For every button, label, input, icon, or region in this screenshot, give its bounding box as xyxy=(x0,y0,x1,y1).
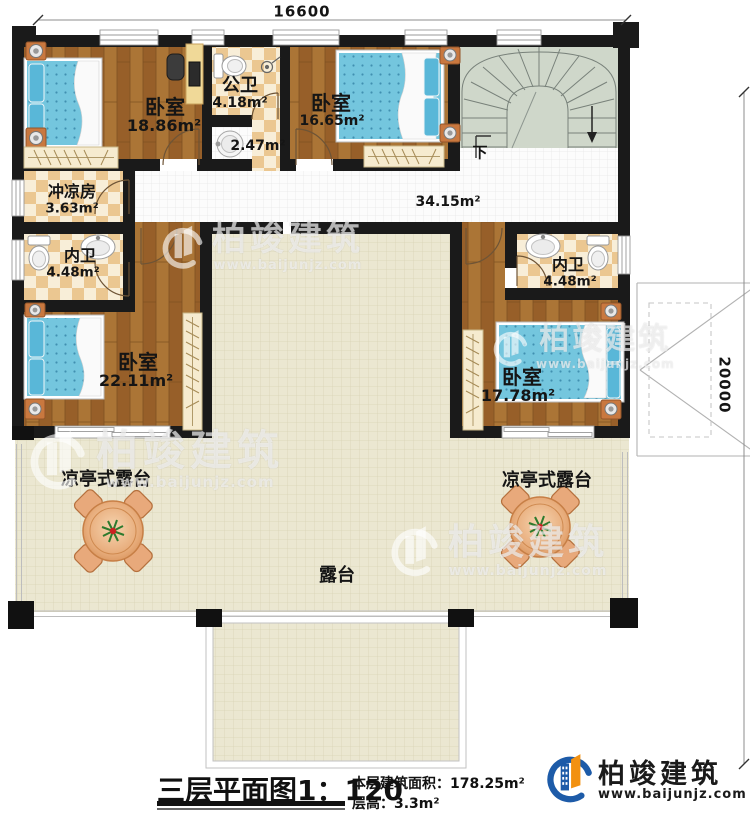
bed-icon xyxy=(24,315,104,399)
floor-plan-page: 16600 20000 卧室 18.86m² 公卫 4.18m² 2.47m² … xyxy=(0,0,750,819)
room-area-shower-room: 3.63m² xyxy=(45,202,98,216)
wardrobe-icon xyxy=(183,313,202,430)
bedroom-bottom-left-entry-floor xyxy=(135,222,200,312)
lower-terrace-floor xyxy=(213,623,459,761)
room-label-bedroom-bottom-left: 卧室 xyxy=(118,352,158,372)
room-area-bedroom-top-right: 16.65m² xyxy=(299,114,364,128)
toilet-icon xyxy=(587,236,609,270)
room-label-shower-room: 冲凉房 xyxy=(48,184,96,200)
wardrobe-icon xyxy=(24,147,118,168)
room-label-pavilion-left: 凉亭式露台 xyxy=(61,471,151,489)
desk-icon xyxy=(186,44,203,104)
title-underline xyxy=(157,801,345,806)
wardrobe-icon xyxy=(364,146,444,167)
room-label-pavilion-right: 凉亭式露台 xyxy=(502,472,592,490)
room-label-bedroom-top-right: 卧室 xyxy=(311,93,351,113)
stair-down-label: 下 xyxy=(472,146,487,161)
room-label-terrace: 露台 xyxy=(319,567,355,585)
building-area-label: 本层建筑面积： xyxy=(352,776,450,792)
room-area-ensuite-left: 4.48m² xyxy=(46,266,99,280)
room-label-ensuite-left: 内卫 xyxy=(64,248,96,264)
room-area-hallway: 34.15m² xyxy=(415,195,480,209)
room-area-bedroom-bottom-right: 17.78m² xyxy=(481,388,555,404)
building-area-value: 178.25m² xyxy=(450,776,525,792)
bedroom-bottom-right-entry-floor xyxy=(462,222,505,300)
room-area-public-bath: 4.18m² xyxy=(212,96,267,110)
courtyard-floor xyxy=(212,234,450,440)
room-label-ensuite-right: 内卫 xyxy=(552,257,584,273)
room-area-bedroom-bottom-left: 22.11m² xyxy=(99,373,173,389)
title-underline-thin xyxy=(157,808,345,810)
hallway-floor xyxy=(135,171,618,222)
room-area-ensuite-right: 4.48m² xyxy=(543,275,596,289)
company-name: 柏竣建筑 xyxy=(598,752,722,791)
room-label-bedroom-top-left: 卧室 xyxy=(145,97,185,117)
chair-icon xyxy=(167,54,184,80)
dimension-top: 16600 xyxy=(273,5,330,20)
dimension-right: 20000 xyxy=(717,356,732,413)
room-area-bedroom-top-left: 18.86m² xyxy=(127,118,201,134)
floor-plan-drawing xyxy=(0,0,750,819)
company-logo-icon xyxy=(546,750,592,806)
room-label-public-bath: 公卫 xyxy=(222,77,258,95)
floor-height-label: 层高： xyxy=(352,796,394,812)
company-website: www.baijunjz.com xyxy=(598,787,747,802)
floor-height-note: 层高：3.3m² xyxy=(352,793,440,813)
room-label-bedroom-bottom-right: 卧室 xyxy=(502,367,542,387)
patio-table-icon xyxy=(499,484,581,571)
room-area-wash-area: 2.47m² xyxy=(230,139,285,153)
floor-height-value: 3.3m² xyxy=(394,796,440,812)
patio-table-icon xyxy=(72,488,154,575)
wardrobe-icon xyxy=(463,330,483,430)
building-area-note: 本层建筑面积：178.25m² xyxy=(352,773,525,793)
